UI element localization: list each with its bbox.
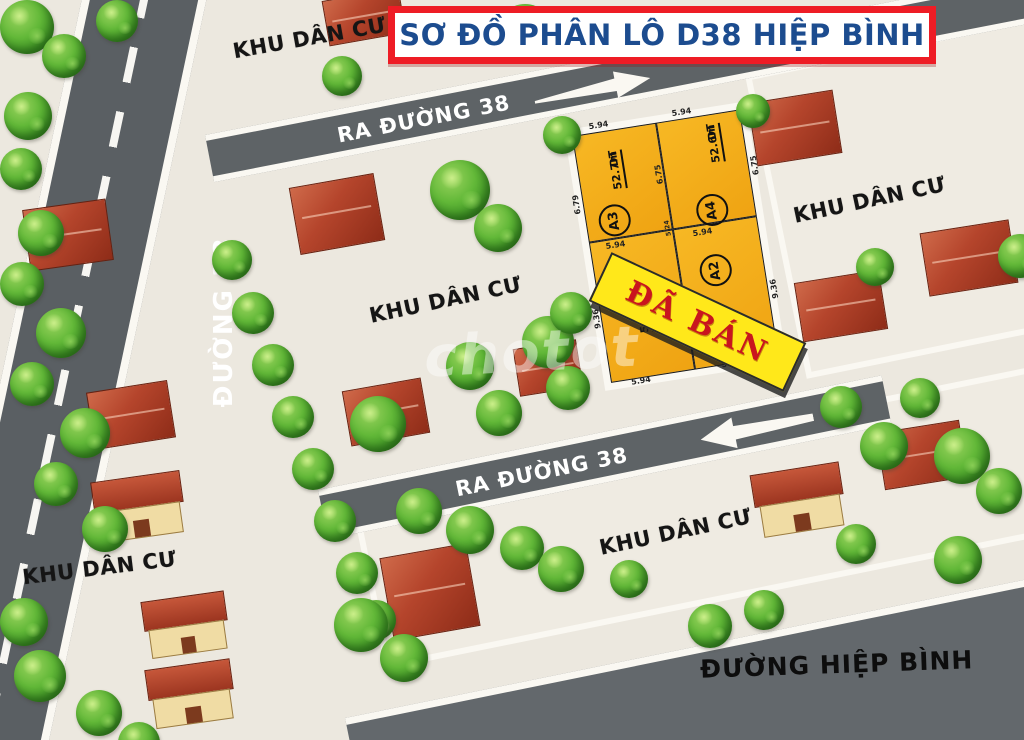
tree-icon <box>336 552 378 594</box>
tree-icon <box>322 56 362 96</box>
tree-icon <box>744 590 784 630</box>
tree-icon <box>212 240 252 280</box>
tree-icon <box>543 116 581 154</box>
tree-icon <box>314 500 356 542</box>
tree-icon <box>380 634 428 682</box>
title-banner: SƠ ĐỒ PHÂN LÔ D38 HIỆP BÌNH <box>388 6 936 64</box>
watermark: chotot <box>422 314 641 390</box>
tree-icon <box>688 604 732 648</box>
tree-icon <box>0 148 42 190</box>
tree-icon <box>14 650 66 702</box>
tree-icon <box>292 448 334 490</box>
tree-icon <box>0 262 44 306</box>
house-icon <box>140 590 231 659</box>
site-plan-map: RA ĐƯỜNG 38 RA ĐƯỜNG 38 ĐƯỜNG 38 DT52.7m… <box>0 0 1024 740</box>
tree-icon <box>350 396 406 452</box>
tree-icon <box>76 690 122 736</box>
tree-icon <box>976 468 1022 514</box>
house-icon <box>750 461 849 538</box>
tree-icon <box>36 308 86 358</box>
page-title: SƠ ĐỒ PHÂN LÔ D38 HIỆP BÌNH <box>399 18 925 52</box>
tree-icon <box>396 488 442 534</box>
tree-icon <box>836 524 876 564</box>
house-icon <box>289 173 386 255</box>
tree-icon <box>232 292 274 334</box>
tree-icon <box>96 0 138 42</box>
tree-icon <box>82 506 128 552</box>
tree-icon <box>538 546 584 592</box>
tree-icon <box>272 396 314 438</box>
tree-icon <box>252 344 294 386</box>
tree-icon <box>934 536 982 584</box>
tree-icon <box>42 34 86 78</box>
tree-icon <box>900 378 940 418</box>
tree-icon <box>34 462 78 506</box>
tree-icon <box>334 598 388 652</box>
tree-icon <box>446 506 494 554</box>
house-icon <box>144 658 238 729</box>
tree-icon <box>474 204 522 252</box>
tree-icon <box>820 386 862 428</box>
tree-icon <box>860 422 908 470</box>
tree-icon <box>476 390 522 436</box>
tree-icon <box>856 248 894 286</box>
tree-icon <box>500 526 544 570</box>
house-roof <box>289 173 386 255</box>
tree-icon <box>0 598 48 646</box>
tree-icon <box>4 92 52 140</box>
tree-icon <box>60 408 110 458</box>
tree-icon <box>10 362 54 406</box>
tree-icon <box>736 94 770 128</box>
tree-icon <box>18 210 64 256</box>
tree-icon <box>610 560 648 598</box>
